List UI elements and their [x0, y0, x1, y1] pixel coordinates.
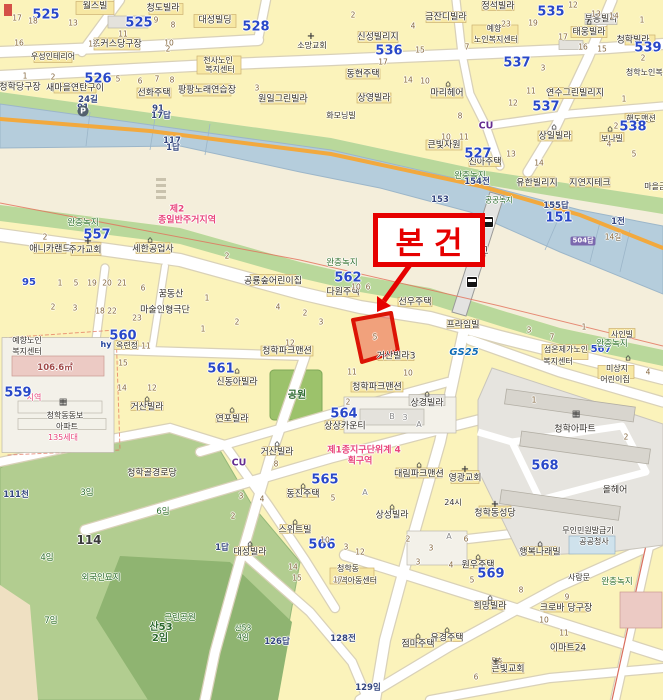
subject-callout-text: 본건 [395, 218, 472, 263]
subject-parcel[interactable] [353, 313, 398, 362]
map-canvas[interactable]: 월스빌청도빌라대성빌딩포커스당구장우성인테리어천사노인복지센터청학당구장새마을연… [0, 0, 663, 700]
map-marker [4, 4, 12, 16]
subject-callout: 본건 [373, 213, 485, 267]
